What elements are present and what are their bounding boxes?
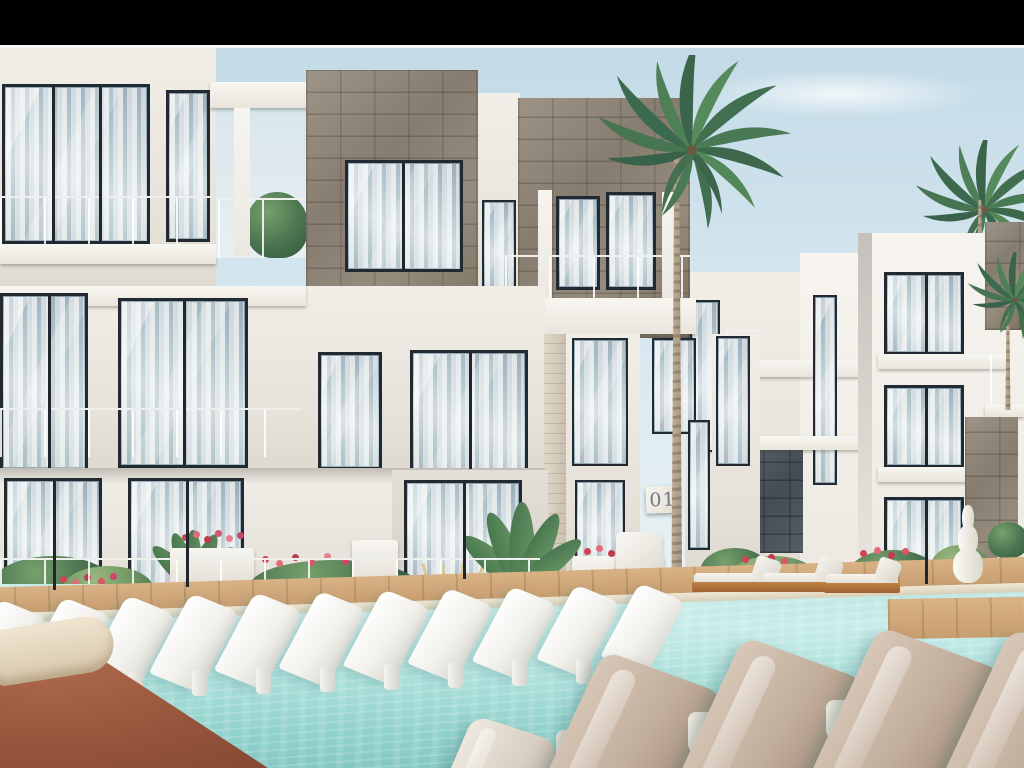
wall-shadow — [858, 233, 872, 603]
floor-slab — [878, 354, 1006, 369]
pergola-beam — [210, 82, 312, 108]
lounger-foot — [512, 660, 527, 686]
unit-number-text: 01 — [649, 488, 676, 511]
terrace-column — [234, 108, 250, 256]
sun-bed-frame — [824, 583, 900, 593]
lounger-foot — [320, 666, 335, 692]
balcony-slab — [985, 404, 1024, 417]
building-window — [572, 338, 628, 466]
palm-tree-crown — [562, 55, 822, 245]
balcony-glass-railing — [0, 408, 302, 457]
flower-cluster — [860, 550, 867, 557]
lounger-foot — [384, 664, 399, 690]
letterbox-divider — [0, 45, 1024, 48]
deck-boardwalk — [888, 597, 1024, 639]
balcony-glass-railing — [218, 198, 308, 258]
building-window — [716, 336, 750, 466]
flower-cluster — [584, 548, 591, 555]
architectural-render: 01 — [0, 0, 1024, 768]
lounger-foot — [576, 658, 591, 684]
lounger-foot — [448, 662, 463, 688]
building-window — [884, 385, 964, 468]
wooden-sun-bed — [824, 557, 900, 593]
palm-tree-crown — [950, 252, 1024, 348]
building-window — [688, 420, 710, 550]
building-window — [345, 160, 463, 272]
balcony-slab — [0, 244, 216, 264]
garden-bush — [988, 522, 1024, 558]
lounger-foot — [192, 670, 207, 696]
building-window — [813, 295, 837, 485]
fountain-tier — [953, 549, 983, 583]
fountain — [950, 505, 986, 583]
letterbox-bar — [0, 0, 1024, 45]
building-window — [318, 352, 382, 470]
lounger-foot — [256, 668, 271, 694]
building-window — [410, 350, 528, 472]
balcony-glass-railing — [0, 196, 212, 250]
